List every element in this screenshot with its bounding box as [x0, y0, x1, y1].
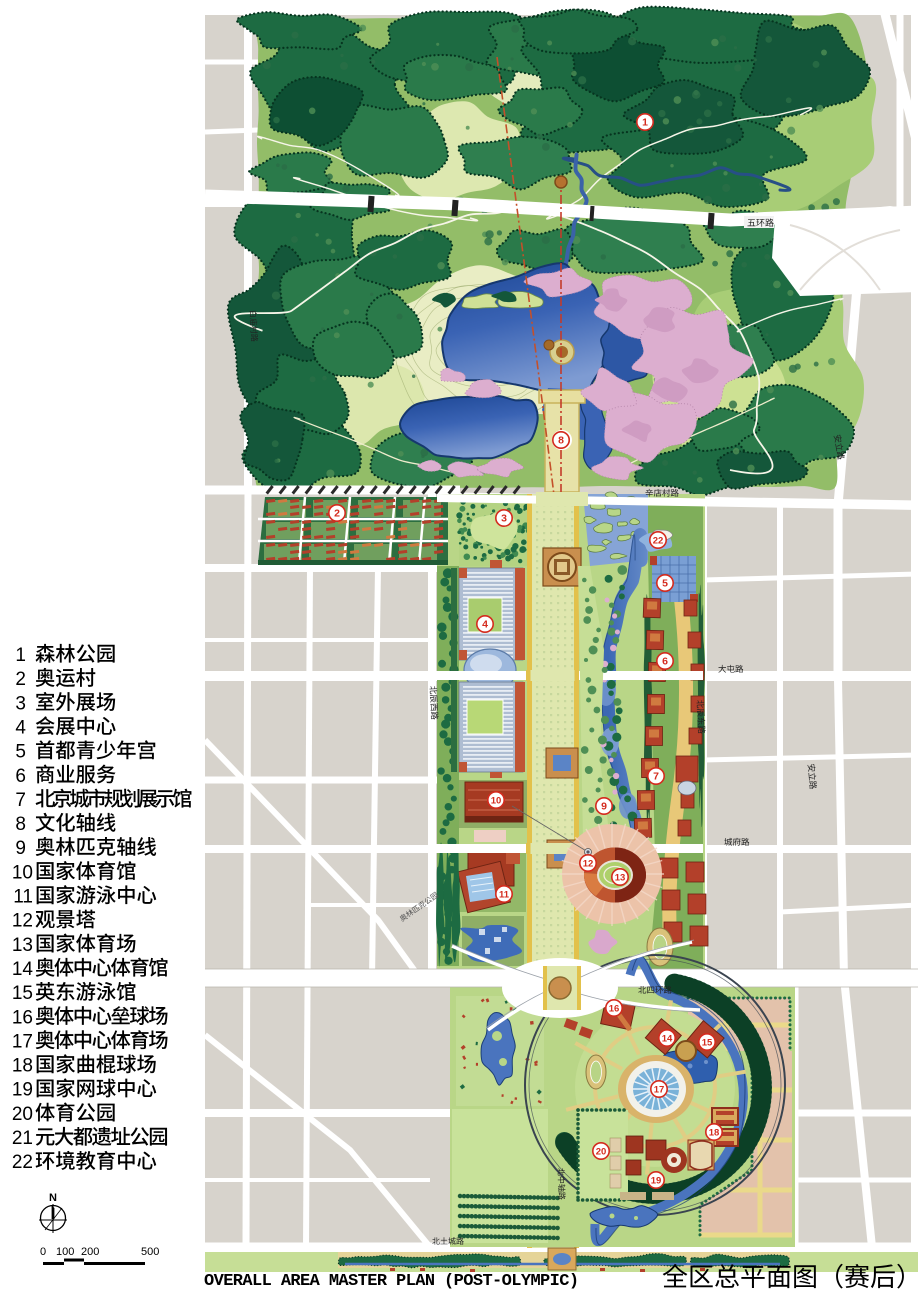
svg-text:18: 18 [709, 1128, 720, 1139]
svg-text:17: 17 [12, 1031, 33, 1052]
svg-text:13: 13 [12, 935, 33, 956]
svg-text:12: 12 [583, 859, 594, 870]
svg-text:1: 1 [642, 117, 648, 129]
svg-text:16: 16 [12, 1007, 33, 1028]
svg-text:21: 21 [12, 1128, 33, 1149]
svg-text:OVERALL AREA MASTER PLAN (POST: OVERALL AREA MASTER PLAN (POST-OLYMPIC) [204, 1272, 578, 1291]
svg-text:10: 10 [491, 796, 502, 807]
svg-text:14: 14 [12, 959, 34, 980]
svg-text:20: 20 [596, 1147, 607, 1158]
svg-text:10: 10 [12, 862, 33, 883]
svg-text:2: 2 [15, 669, 26, 690]
svg-text:5: 5 [15, 742, 26, 763]
svg-text:17: 17 [654, 1085, 665, 1096]
svg-text:9: 9 [601, 801, 607, 813]
svg-text:200: 200 [81, 1246, 99, 1258]
svg-text:100: 100 [56, 1246, 74, 1258]
svg-text:19: 19 [12, 1080, 33, 1101]
svg-text:7: 7 [653, 771, 659, 783]
svg-text:8: 8 [558, 435, 564, 447]
svg-text:5: 5 [662, 578, 668, 590]
svg-text:1: 1 [15, 645, 26, 666]
svg-text:11: 11 [13, 887, 33, 908]
svg-text:0: 0 [40, 1246, 46, 1258]
svg-text:14: 14 [662, 1034, 673, 1045]
svg-text:11: 11 [499, 890, 510, 901]
svg-text:9: 9 [15, 838, 26, 859]
svg-text:16: 16 [609, 1004, 620, 1015]
svg-text:20: 20 [12, 1104, 33, 1125]
svg-text:6: 6 [662, 656, 668, 668]
svg-text:4: 4 [15, 717, 26, 738]
svg-text:3: 3 [501, 513, 507, 525]
svg-text:18: 18 [12, 1056, 33, 1077]
svg-text:22: 22 [653, 536, 664, 547]
svg-text:15: 15 [12, 983, 33, 1004]
svg-text:4: 4 [482, 619, 488, 631]
svg-text:500: 500 [141, 1246, 159, 1258]
svg-text:19: 19 [651, 1176, 662, 1187]
svg-text:3: 3 [15, 693, 26, 714]
svg-text:6: 6 [15, 766, 26, 787]
svg-text:2: 2 [334, 508, 340, 520]
svg-text:8: 8 [15, 814, 26, 835]
svg-text:22: 22 [12, 1152, 33, 1173]
svg-text:N: N [49, 1192, 57, 1204]
svg-text:12: 12 [12, 911, 33, 932]
svg-text:7: 7 [15, 790, 26, 811]
svg-text:15: 15 [702, 1038, 713, 1049]
svg-text:13: 13 [615, 873, 626, 884]
